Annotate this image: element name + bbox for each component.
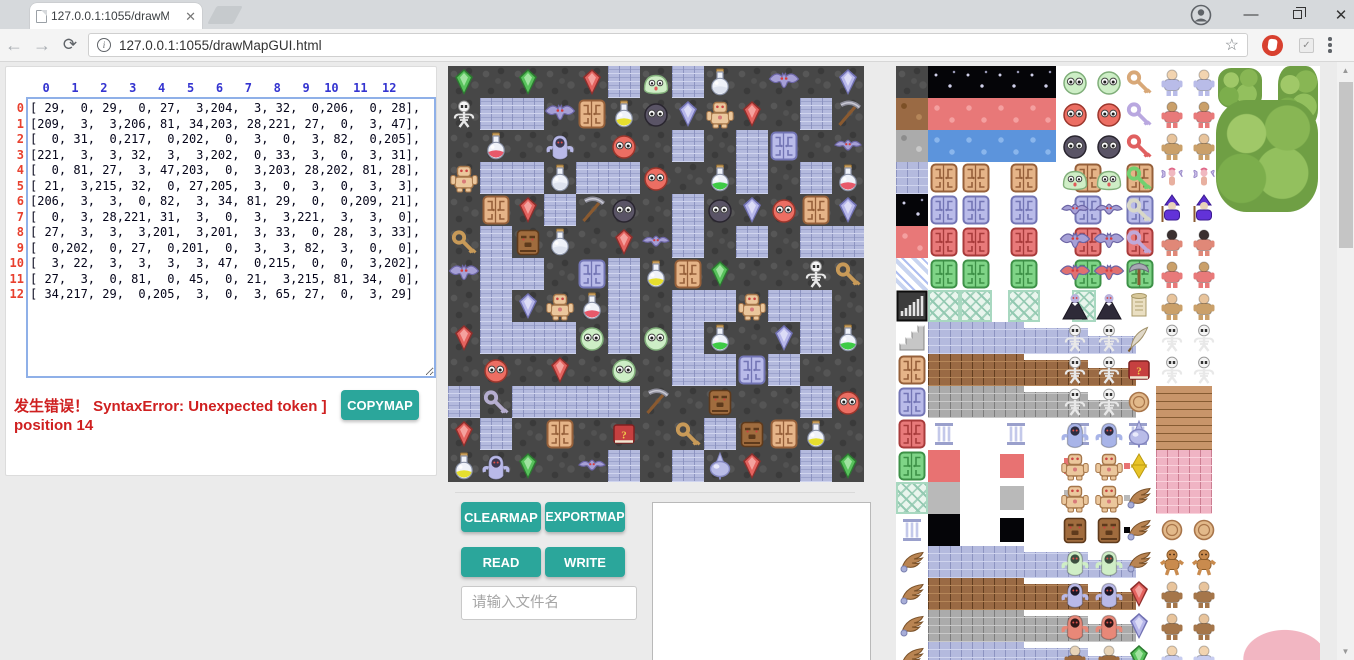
tileset-tile[interactable] — [1188, 642, 1220, 660]
tileset-tile[interactable] — [1156, 66, 1188, 98]
map-tile[interactable] — [800, 226, 832, 258]
tileset-tile[interactable] — [1093, 194, 1125, 226]
map-tile[interactable] — [480, 258, 512, 290]
map-tile[interactable] — [800, 66, 832, 98]
map-tile[interactable] — [512, 354, 544, 386]
tileset-tile[interactable] — [1059, 354, 1091, 386]
map-tile[interactable] — [736, 194, 768, 226]
browser-tab[interactable]: 127.0.0.1:1055/drawMa ✕ — [30, 3, 202, 29]
tileset-tile[interactable] — [896, 162, 928, 194]
tileset-tile[interactable] — [1123, 482, 1155, 514]
tileset-tile[interactable] — [1059, 514, 1091, 546]
scrollbar-thumb[interactable] — [1339, 82, 1353, 248]
browser-menu-icon[interactable] — [1328, 37, 1332, 53]
tileset-tile[interactable] — [1156, 258, 1188, 290]
clearmap-button[interactable]: CLEARMAP — [461, 502, 541, 532]
map-tile[interactable] — [576, 354, 608, 386]
map-tile[interactable] — [576, 418, 608, 450]
map-tile[interactable] — [672, 194, 704, 226]
map-tile[interactable] — [512, 130, 544, 162]
tileset-tile[interactable] — [1188, 98, 1220, 130]
tileset-tile[interactable] — [1156, 354, 1188, 386]
tileset-tile[interactable] — [928, 610, 1024, 642]
map-tile[interactable] — [544, 386, 576, 418]
map-tile[interactable] — [544, 162, 576, 194]
map-tile[interactable] — [800, 258, 832, 290]
map-tile[interactable] — [800, 386, 832, 418]
map-tile[interactable] — [832, 290, 864, 322]
tileset-tile[interactable] — [1093, 98, 1125, 130]
tileset-tile[interactable] — [1156, 642, 1188, 660]
url-text[interactable]: 127.0.0.1:1055/drawMapGUI.html — [119, 38, 1225, 53]
tileset-tile[interactable] — [896, 194, 928, 226]
tileset-tile[interactable] — [928, 578, 1024, 610]
map-tile[interactable] — [480, 162, 512, 194]
tileset-tile[interactable] — [1156, 578, 1188, 610]
tileset-tile[interactable] — [1156, 386, 1212, 418]
tileset-tile[interactable] — [1059, 578, 1091, 610]
tileset-tile[interactable] — [896, 130, 928, 162]
tileset-tile[interactable] — [1059, 642, 1091, 660]
map-tile[interactable] — [832, 98, 864, 130]
tileset-tile[interactable] — [1156, 194, 1188, 226]
map-tile[interactable] — [512, 322, 544, 354]
map-tile[interactable] — [736, 290, 768, 322]
map-tile[interactable] — [608, 450, 640, 482]
map-tile[interactable] — [736, 66, 768, 98]
tileset-tile[interactable] — [896, 482, 928, 514]
tileset-tile[interactable] — [928, 258, 960, 290]
tileset-tile[interactable] — [1093, 130, 1125, 162]
tileset-tile[interactable] — [1156, 162, 1188, 194]
tileset-tile[interactable] — [928, 546, 1024, 578]
forward-icon[interactable]: → — [28, 35, 56, 56]
map-tile[interactable] — [768, 290, 800, 322]
tileset-tile[interactable] — [1059, 450, 1091, 482]
map-tile[interactable] — [736, 162, 768, 194]
tileset-tile[interactable] — [1059, 162, 1091, 194]
map-tile[interactable] — [800, 450, 832, 482]
tileset-tile[interactable] — [1093, 386, 1125, 418]
map-tile[interactable] — [480, 194, 512, 226]
map-tile[interactable] — [544, 322, 576, 354]
map-tile[interactable] — [608, 98, 640, 130]
tileset-tile[interactable] — [896, 226, 928, 258]
map-tile[interactable] — [768, 450, 800, 482]
map-tile[interactable] — [448, 130, 480, 162]
tileset-tile[interactable] — [1188, 610, 1220, 642]
map-tile[interactable] — [800, 322, 832, 354]
tileset-tile[interactable] — [1188, 546, 1220, 578]
page-scrollbar[interactable]: ▲ ▼ — [1337, 62, 1354, 660]
tileset-tile[interactable] — [896, 98, 928, 130]
map-tile[interactable] — [704, 226, 736, 258]
map-tile[interactable] — [768, 226, 800, 258]
map-tile[interactable] — [672, 98, 704, 130]
map-tile[interactable] — [544, 418, 576, 450]
map-tile[interactable] — [800, 162, 832, 194]
map-tile[interactable] — [544, 98, 576, 130]
map-tile[interactable]: ? — [608, 418, 640, 450]
map-tile[interactable] — [512, 194, 544, 226]
tileset-tile[interactable] — [1059, 194, 1091, 226]
map-tile[interactable] — [608, 258, 640, 290]
map-tile[interactable] — [832, 130, 864, 162]
tileset-tile[interactable] — [1008, 258, 1040, 290]
map-tile[interactable] — [448, 258, 480, 290]
map-tile[interactable] — [800, 418, 832, 450]
tileset-tile[interactable] — [1123, 162, 1155, 194]
map-tile[interactable] — [736, 450, 768, 482]
tileset-tile[interactable] — [1156, 418, 1212, 450]
map-tile[interactable] — [512, 258, 544, 290]
tileset-tile[interactable] — [928, 418, 960, 450]
map-tile[interactable] — [512, 66, 544, 98]
tileset-tile[interactable] — [1123, 514, 1155, 546]
map-tile[interactable] — [640, 354, 672, 386]
map-tile[interactable] — [640, 98, 672, 130]
map-tile[interactable] — [832, 354, 864, 386]
tileset-tile[interactable] — [1008, 290, 1040, 322]
map-tile[interactable] — [672, 258, 704, 290]
map-tile[interactable] — [640, 162, 672, 194]
map-tile[interactable] — [448, 66, 480, 98]
tileset-tile[interactable] — [1123, 98, 1155, 130]
map-tile[interactable] — [448, 194, 480, 226]
tileset-tile[interactable] — [1093, 258, 1125, 290]
map-tile[interactable] — [736, 354, 768, 386]
map-tile[interactable] — [608, 354, 640, 386]
tileset-tile[interactable] — [960, 226, 992, 258]
map-tile[interactable] — [672, 162, 704, 194]
map-tile[interactable] — [448, 226, 480, 258]
address-bar[interactable]: i 127.0.0.1:1055/drawMapGUI.html ☆ — [88, 33, 1248, 57]
map-tile[interactable] — [544, 226, 576, 258]
map-tile[interactable] — [768, 130, 800, 162]
map-tile[interactable] — [704, 66, 736, 98]
map-tile[interactable] — [544, 258, 576, 290]
window-close-button[interactable]: ✕ — [1328, 0, 1354, 29]
map-tile[interactable] — [736, 98, 768, 130]
tileset-tile[interactable] — [1093, 450, 1125, 482]
map-tile[interactable] — [448, 98, 480, 130]
tileset-tile[interactable] — [928, 354, 1024, 386]
map-tile[interactable] — [576, 66, 608, 98]
map-tile[interactable] — [576, 386, 608, 418]
map-tile[interactable] — [768, 354, 800, 386]
map-tile[interactable] — [480, 354, 512, 386]
map-tile[interactable] — [672, 322, 704, 354]
new-tab-button[interactable] — [207, 6, 243, 24]
map-tile[interactable] — [704, 354, 736, 386]
map-tile[interactable] — [608, 66, 640, 98]
map-tile[interactable] — [768, 162, 800, 194]
tileset-tile[interactable] — [928, 290, 960, 322]
map-tile[interactable] — [448, 450, 480, 482]
map-tile[interactable] — [768, 258, 800, 290]
tileset-tile[interactable] — [928, 226, 960, 258]
scroll-up-icon[interactable]: ▲ — [1337, 62, 1354, 79]
map-tile[interactable] — [448, 386, 480, 418]
map-tile[interactable] — [704, 258, 736, 290]
tileset-tile[interactable] — [1156, 610, 1188, 642]
map-tile[interactable] — [704, 418, 736, 450]
map-tile[interactable] — [544, 194, 576, 226]
map-tile[interactable] — [640, 66, 672, 98]
tileset-tile[interactable] — [896, 514, 928, 546]
tileset-tile[interactable] — [1156, 546, 1188, 578]
tileset-tile[interactable] — [1059, 546, 1091, 578]
tileset-tile[interactable] — [928, 386, 1024, 418]
map-tile[interactable] — [448, 290, 480, 322]
map-tile[interactable] — [800, 290, 832, 322]
tileset-tile[interactable] — [896, 66, 928, 98]
tileset-tile[interactable] — [928, 514, 960, 546]
map-tile[interactable] — [704, 130, 736, 162]
tileset-tile[interactable] — [1123, 226, 1155, 258]
tileset-tile[interactable] — [1059, 130, 1091, 162]
filename-input[interactable] — [461, 586, 637, 620]
write-button[interactable]: WRITE — [545, 547, 625, 577]
map-tile[interactable] — [576, 258, 608, 290]
tileset-tile[interactable] — [896, 290, 928, 322]
tileset-tile[interactable] — [1059, 386, 1091, 418]
tileset-tile[interactable] — [1059, 290, 1091, 322]
map-tile[interactable] — [704, 162, 736, 194]
tileset-tile[interactable] — [1156, 226, 1188, 258]
map-tile[interactable] — [768, 194, 800, 226]
tileset-tile[interactable]: ? — [1123, 354, 1155, 386]
map-tile[interactable] — [672, 66, 704, 98]
exportmap-button[interactable]: EXPORTMAP — [545, 502, 625, 532]
read-button[interactable]: READ — [461, 547, 541, 577]
map-tile[interactable] — [832, 386, 864, 418]
tileset-tile[interactable] — [960, 258, 992, 290]
map-tile[interactable] — [704, 450, 736, 482]
map-tile[interactable] — [480, 66, 512, 98]
map-tile[interactable] — [640, 226, 672, 258]
tileset-tile[interactable] — [1156, 450, 1212, 482]
map-tile[interactable] — [480, 98, 512, 130]
map-tile[interactable] — [576, 226, 608, 258]
tileset-tile[interactable] — [1123, 418, 1155, 450]
tileset-tile[interactable] — [1059, 226, 1091, 258]
tileset-tile[interactable] — [1093, 226, 1125, 258]
tileset-tile[interactable] — [1059, 482, 1091, 514]
tileset-tile[interactable] — [1156, 98, 1188, 130]
map-matrix-textarea[interactable] — [26, 97, 436, 378]
map-tile[interactable] — [608, 162, 640, 194]
map-tile[interactable] — [832, 258, 864, 290]
tileset-tile[interactable] — [1156, 130, 1188, 162]
map-tile[interactable] — [736, 418, 768, 450]
tileset-tile[interactable] — [928, 482, 960, 514]
tileset-tile[interactable] — [1008, 194, 1040, 226]
map-tile[interactable] — [672, 418, 704, 450]
tileset-tile[interactable] — [1093, 514, 1125, 546]
map-tile[interactable] — [512, 290, 544, 322]
map-tile[interactable] — [512, 226, 544, 258]
map-tile[interactable] — [832, 226, 864, 258]
map-tile[interactable] — [832, 66, 864, 98]
map-tile[interactable] — [640, 194, 672, 226]
map-tile[interactable] — [576, 98, 608, 130]
map-tile[interactable] — [480, 226, 512, 258]
tileset-tile[interactable] — [896, 386, 928, 418]
tileset-tile[interactable] — [1008, 162, 1040, 194]
tileset-tile[interactable] — [1188, 258, 1220, 290]
map-tile[interactable] — [768, 418, 800, 450]
tileset-tile[interactable] — [1059, 98, 1091, 130]
tileset-tile[interactable] — [1123, 610, 1155, 642]
tileset-tile[interactable] — [1093, 322, 1125, 354]
map-tile[interactable] — [640, 322, 672, 354]
tileset-tile[interactable] — [896, 354, 928, 386]
map-tile[interactable] — [736, 322, 768, 354]
map-tile[interactable] — [672, 290, 704, 322]
map-tile[interactable] — [480, 290, 512, 322]
map-tile[interactable] — [576, 290, 608, 322]
tileset-tile[interactable] — [1123, 578, 1155, 610]
tileset-tile[interactable] — [1156, 322, 1188, 354]
map-tile[interactable] — [800, 194, 832, 226]
tileset-tile[interactable] — [1123, 322, 1155, 354]
map-tile[interactable] — [832, 418, 864, 450]
map-tile[interactable] — [576, 130, 608, 162]
map-tile[interactable] — [640, 418, 672, 450]
map-tile[interactable] — [832, 162, 864, 194]
tileset-tile[interactable] — [1123, 258, 1155, 290]
map-tile[interactable] — [544, 66, 576, 98]
tileset-tile[interactable] — [1188, 322, 1220, 354]
map-canvas[interactable]: ? — [448, 66, 864, 482]
map-tile[interactable] — [704, 98, 736, 130]
map-tile[interactable] — [672, 386, 704, 418]
map-tile[interactable] — [832, 450, 864, 482]
tileset-tile[interactable] — [1000, 418, 1026, 450]
map-tile[interactable] — [576, 194, 608, 226]
map-tile[interactable] — [448, 322, 480, 354]
profile-icon[interactable] — [1188, 0, 1214, 29]
map-tile[interactable] — [512, 418, 544, 450]
map-tile[interactable] — [608, 194, 640, 226]
tileset-tile[interactable] — [1093, 546, 1125, 578]
tileset-tile[interactable] — [1188, 578, 1220, 610]
tileset-tile[interactable] — [928, 194, 960, 226]
map-tile[interactable] — [800, 354, 832, 386]
tileset-tile[interactable] — [928, 450, 960, 482]
tileset-tile[interactable] — [896, 450, 928, 482]
tileset-tile[interactable] — [1059, 418, 1091, 450]
tileset-tile[interactable] — [1093, 610, 1125, 642]
tileset-tile[interactable] — [928, 642, 1024, 660]
map-tile[interactable] — [608, 130, 640, 162]
tileset-tile[interactable] — [928, 66, 1056, 98]
adblock-extension-icon[interactable] — [1262, 35, 1283, 56]
map-tile[interactable] — [736, 386, 768, 418]
tileset-tile[interactable] — [960, 194, 992, 226]
map-tile[interactable] — [640, 290, 672, 322]
tileset-tile[interactable] — [1188, 226, 1220, 258]
map-tile[interactable] — [512, 98, 544, 130]
map-tile[interactable] — [608, 226, 640, 258]
map-tile[interactable] — [736, 258, 768, 290]
tileset-tile[interactable] — [896, 322, 928, 354]
tileset-tile[interactable] — [896, 418, 928, 450]
tileset-tile[interactable] — [1123, 194, 1155, 226]
tileset-tile[interactable] — [1093, 162, 1125, 194]
minimize-button[interactable]: — — [1236, 0, 1266, 29]
tileset-tile[interactable] — [1059, 258, 1091, 290]
map-tile[interactable] — [448, 354, 480, 386]
tileset-tile[interactable] — [1093, 482, 1125, 514]
extension-check-icon[interactable]: ✓ — [1299, 38, 1314, 53]
map-tile[interactable] — [768, 386, 800, 418]
map-tile[interactable] — [576, 162, 608, 194]
map-tile[interactable] — [512, 162, 544, 194]
tileset-tile[interactable] — [1188, 194, 1220, 226]
map-tile[interactable] — [704, 194, 736, 226]
map-tile[interactable] — [768, 322, 800, 354]
map-tile[interactable] — [672, 450, 704, 482]
map-tile[interactable] — [832, 194, 864, 226]
map-tile[interactable] — [480, 418, 512, 450]
reload-icon[interactable]: ⟳ — [56, 35, 84, 55]
tab-close-icon[interactable]: ✕ — [185, 10, 196, 23]
tileset-tile[interactable] — [896, 258, 928, 290]
tileset-tile[interactable] — [1156, 514, 1188, 546]
map-tile[interactable] — [768, 66, 800, 98]
tileset-tile[interactable] — [896, 578, 928, 610]
tileset-tile[interactable] — [1059, 322, 1091, 354]
map-tile[interactable] — [800, 130, 832, 162]
tileset-tile[interactable] — [1008, 226, 1040, 258]
copymap-button[interactable]: COPYMAP — [341, 390, 419, 420]
map-tile[interactable] — [704, 386, 736, 418]
tileset-tile[interactable] — [1188, 66, 1220, 98]
map-tile[interactable] — [480, 322, 512, 354]
map-tile[interactable] — [608, 386, 640, 418]
map-tile[interactable] — [480, 130, 512, 162]
map-tile[interactable] — [640, 130, 672, 162]
map-tile[interactable] — [544, 290, 576, 322]
map-tile[interactable] — [640, 258, 672, 290]
tileset-tile[interactable] — [1093, 66, 1125, 98]
map-tile[interactable] — [512, 450, 544, 482]
tileset-tile[interactable] — [1123, 450, 1155, 482]
tileset-tile[interactable] — [1059, 66, 1091, 98]
map-tile[interactable] — [704, 290, 736, 322]
map-tile[interactable] — [448, 162, 480, 194]
tileset-tile[interactable] — [1188, 354, 1220, 386]
bookmark-star-icon[interactable]: ☆ — [1225, 35, 1239, 55]
tileset-tile[interactable] — [896, 546, 928, 578]
tileset-tile[interactable] — [1123, 546, 1155, 578]
tileset-tile[interactable] — [1093, 290, 1125, 322]
tileset-tile[interactable] — [1123, 642, 1155, 660]
tileset-tile[interactable] — [896, 642, 928, 660]
tileset-tile[interactable] — [1156, 290, 1188, 322]
map-tile[interactable] — [480, 450, 512, 482]
tileset-tile[interactable] — [928, 322, 1024, 354]
map-tile[interactable] — [608, 322, 640, 354]
tileset-tile[interactable] — [896, 610, 928, 642]
tileset-tile[interactable] — [960, 162, 992, 194]
tileset-tile[interactable] — [1156, 482, 1212, 514]
tileset-tile[interactable] — [1093, 578, 1125, 610]
tileset-tile[interactable] — [1093, 418, 1125, 450]
tileset-tile[interactable] — [960, 290, 992, 322]
